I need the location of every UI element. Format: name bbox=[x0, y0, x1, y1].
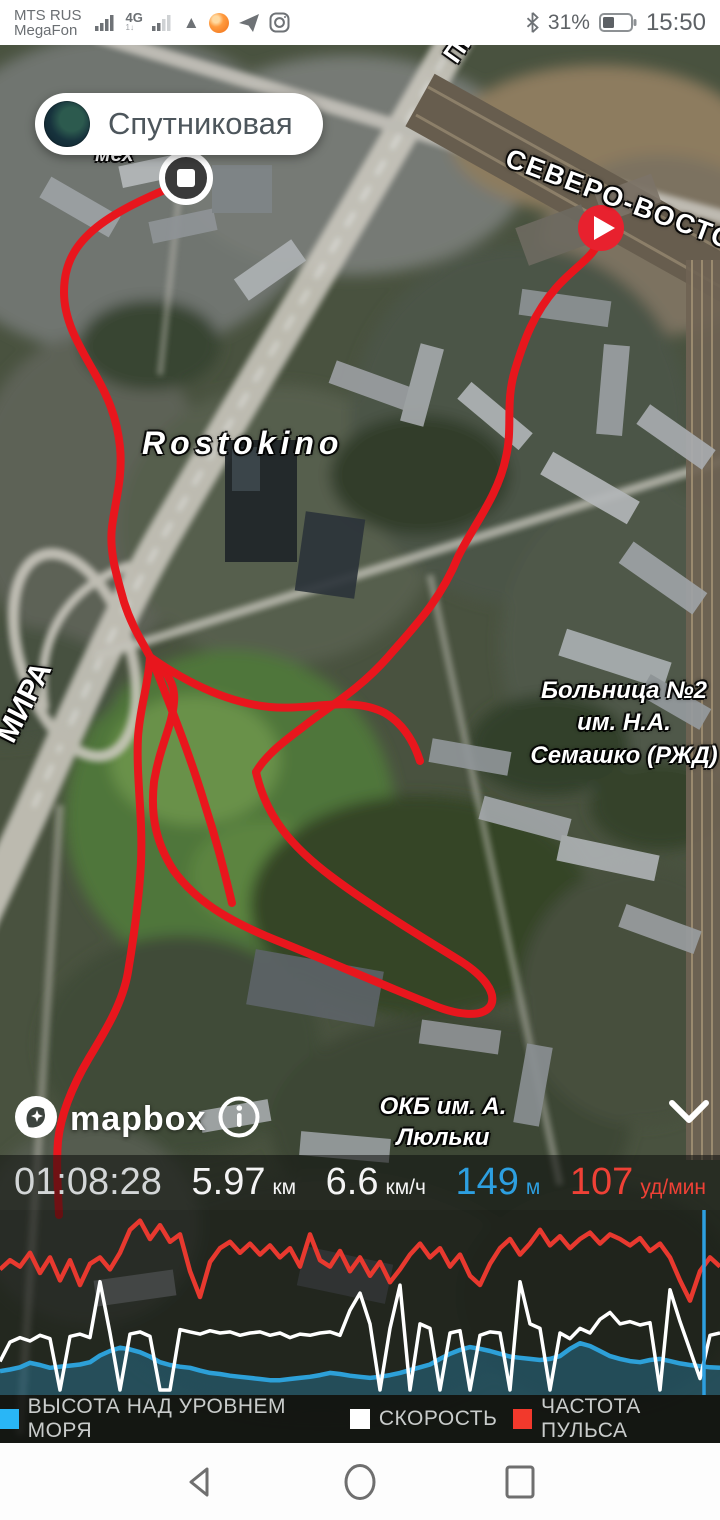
stat-speed: 6.6км/ч bbox=[326, 1161, 426, 1204]
elevation-swatch-icon bbox=[0, 1409, 19, 1429]
track-charts[interactable] bbox=[0, 1210, 720, 1395]
recents-square-icon[interactable] bbox=[480, 1443, 560, 1520]
map-layer-button[interactable]: Спутниковая bbox=[35, 93, 323, 155]
map-layer-label: Спутниковая bbox=[108, 106, 293, 142]
battery-percent: 31% bbox=[548, 11, 590, 35]
satellite-thumbnail-icon bbox=[44, 101, 90, 147]
android-nav-bar bbox=[0, 1443, 720, 1520]
vpn-triangle-icon: ▲ bbox=[183, 13, 200, 33]
stat-elevation: 149м bbox=[455, 1161, 540, 1204]
home-circle-icon[interactable] bbox=[320, 1443, 400, 1520]
mapbox-logo-icon bbox=[14, 1095, 58, 1144]
poi-label-okb: ОКБ им. А. Люльки bbox=[360, 1091, 526, 1153]
battery-icon bbox=[599, 13, 637, 32]
network-type-badge: 4G1↓ bbox=[126, 13, 143, 33]
legend-item-speed: СКОРОСТЬ bbox=[350, 1407, 497, 1431]
stat-duration: 01:08:28 bbox=[14, 1161, 162, 1204]
legend-item-heart-rate: ЧАСТОТА ПУЛЬСА bbox=[513, 1395, 720, 1443]
signal-bars-icon bbox=[95, 14, 117, 32]
heart-rate-line bbox=[0, 1221, 720, 1301]
stat-heart-rate: 107уд/мин bbox=[570, 1161, 706, 1204]
bluetooth-icon bbox=[526, 12, 539, 33]
heart-rate-swatch-icon bbox=[513, 1409, 532, 1429]
carrier-label: MTS RUS MegaFon bbox=[14, 8, 82, 38]
attribution-info-icon[interactable] bbox=[218, 1096, 260, 1143]
finish-stop-marker[interactable] bbox=[162, 154, 210, 202]
stat-distance: 5.97км bbox=[192, 1161, 297, 1204]
legend-item-elevation: ВЫСОТА НАД УРОВНЕМ МОРЯ bbox=[0, 1395, 334, 1443]
signal-bars-2-icon bbox=[152, 14, 174, 32]
orange-app-icon bbox=[209, 13, 229, 33]
poi-label-hospital: Больница №2 им. Н.А. Семашко (РЖД) bbox=[528, 675, 720, 772]
chart-legend: ВЫСОТА НАД УРОВНЕМ МОРЯ СКОРОСТЬ ЧАСТОТА… bbox=[0, 1395, 720, 1443]
status-bar: MTS RUS MegaFon 4G1↓ ▲ 31% bbox=[0, 0, 720, 45]
clock: 15:50 bbox=[646, 9, 706, 37]
back-triangle-icon[interactable] bbox=[160, 1443, 240, 1520]
map-view[interactable]: мех Rostokino СЕВЕРО-ВОСТОЧ ПРО МИРА Бол… bbox=[0, 45, 720, 1443]
collapse-panel-chevron-icon[interactable] bbox=[666, 1097, 712, 1132]
district-label-rostokino: Rostokino bbox=[142, 425, 343, 462]
speed-swatch-icon bbox=[350, 1409, 370, 1429]
instagram-icon bbox=[269, 12, 290, 33]
mapbox-wordmark: mapbox bbox=[70, 1100, 206, 1139]
telegram-icon bbox=[238, 13, 260, 33]
phone-screen: MTS RUS MegaFon 4G1↓ ▲ 31% bbox=[0, 0, 720, 1520]
stats-bar: 01:08:28 5.97км 6.6км/ч 149м 107уд/мин bbox=[0, 1155, 720, 1210]
